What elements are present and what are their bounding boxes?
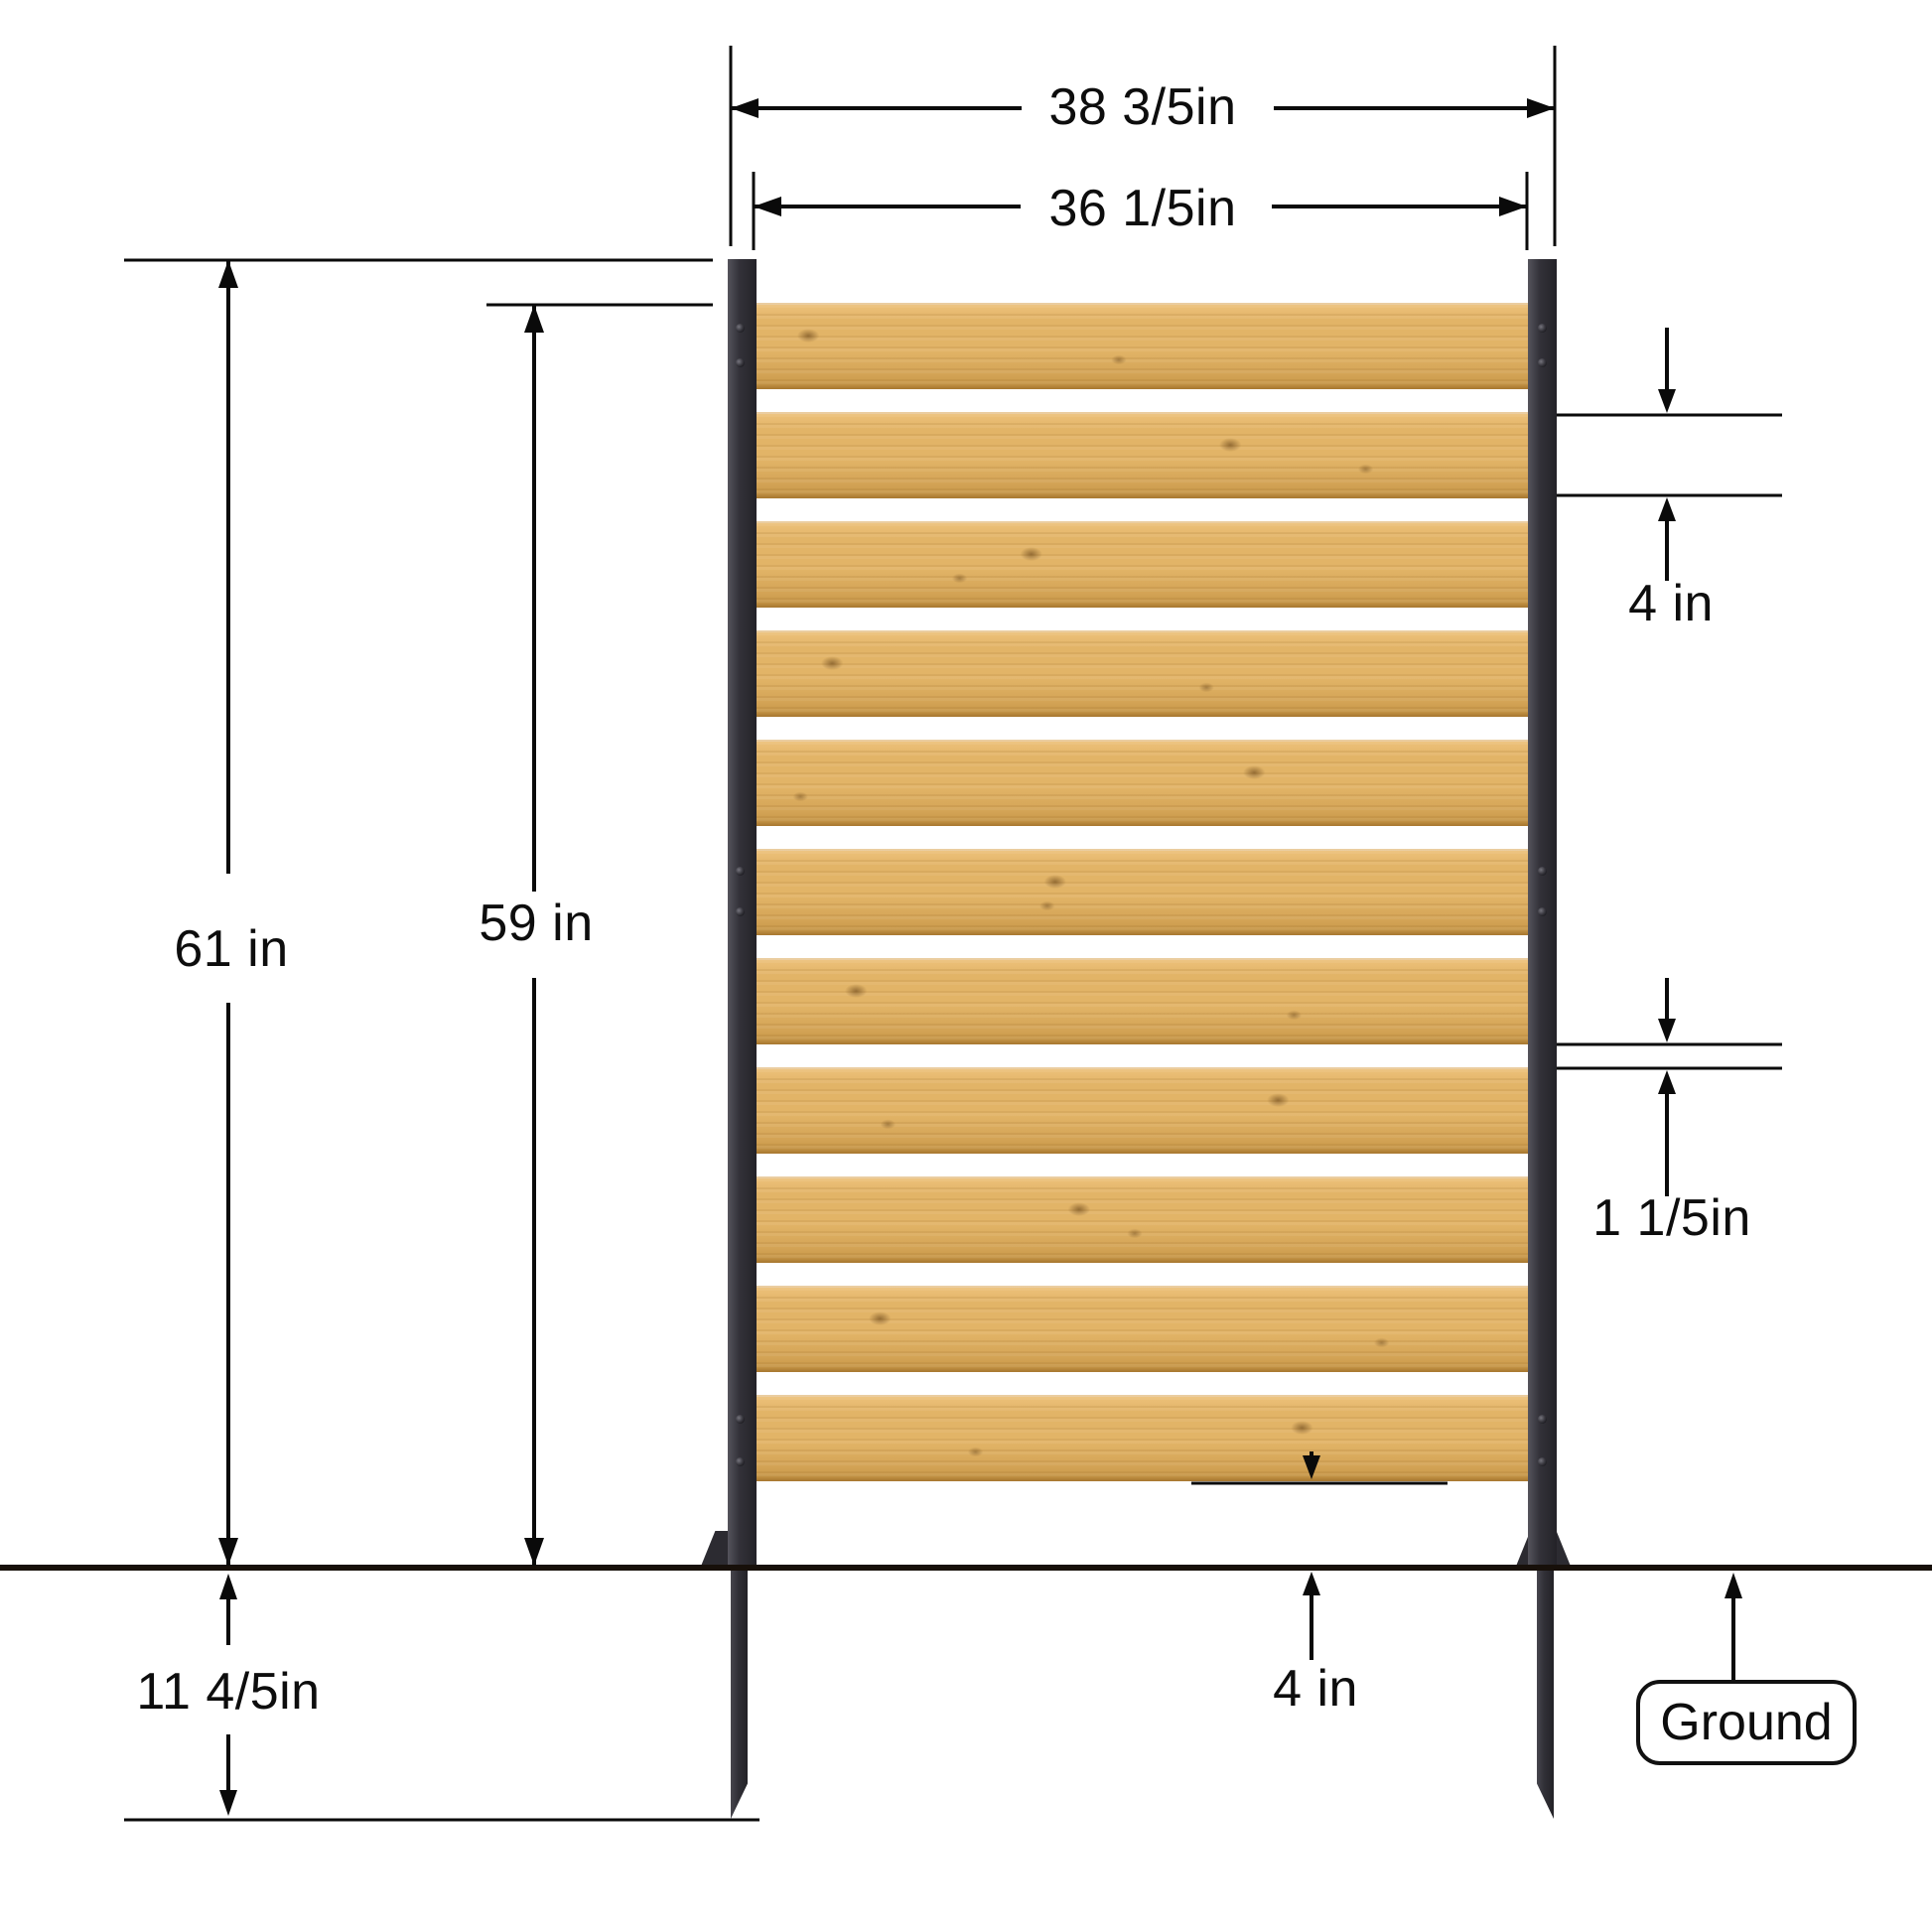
post-height-label: 61 in	[174, 923, 288, 975]
slat-width-label: 4 in	[1628, 578, 1714, 629]
ground-callout: Ground	[1636, 1680, 1857, 1765]
slat-top-height-label: 59 in	[479, 897, 593, 949]
stake-depth-label: 11 4/5in	[136, 1666, 320, 1718]
dimension-lines	[0, 0, 1932, 1932]
outer-width-label: 38 3/5in	[1048, 81, 1236, 133]
bottom-clearance-label: 4 in	[1273, 1663, 1358, 1715]
slat-gap-label: 1 1/5in	[1592, 1192, 1751, 1244]
ground-label: Ground	[1660, 1693, 1832, 1752]
panel-width-label: 36 1/5in	[1048, 183, 1236, 234]
fence-dimension-diagram: 38 3/5in 36 1/5in 61 in 59 in 4 in 1 1/5…	[0, 0, 1932, 1932]
